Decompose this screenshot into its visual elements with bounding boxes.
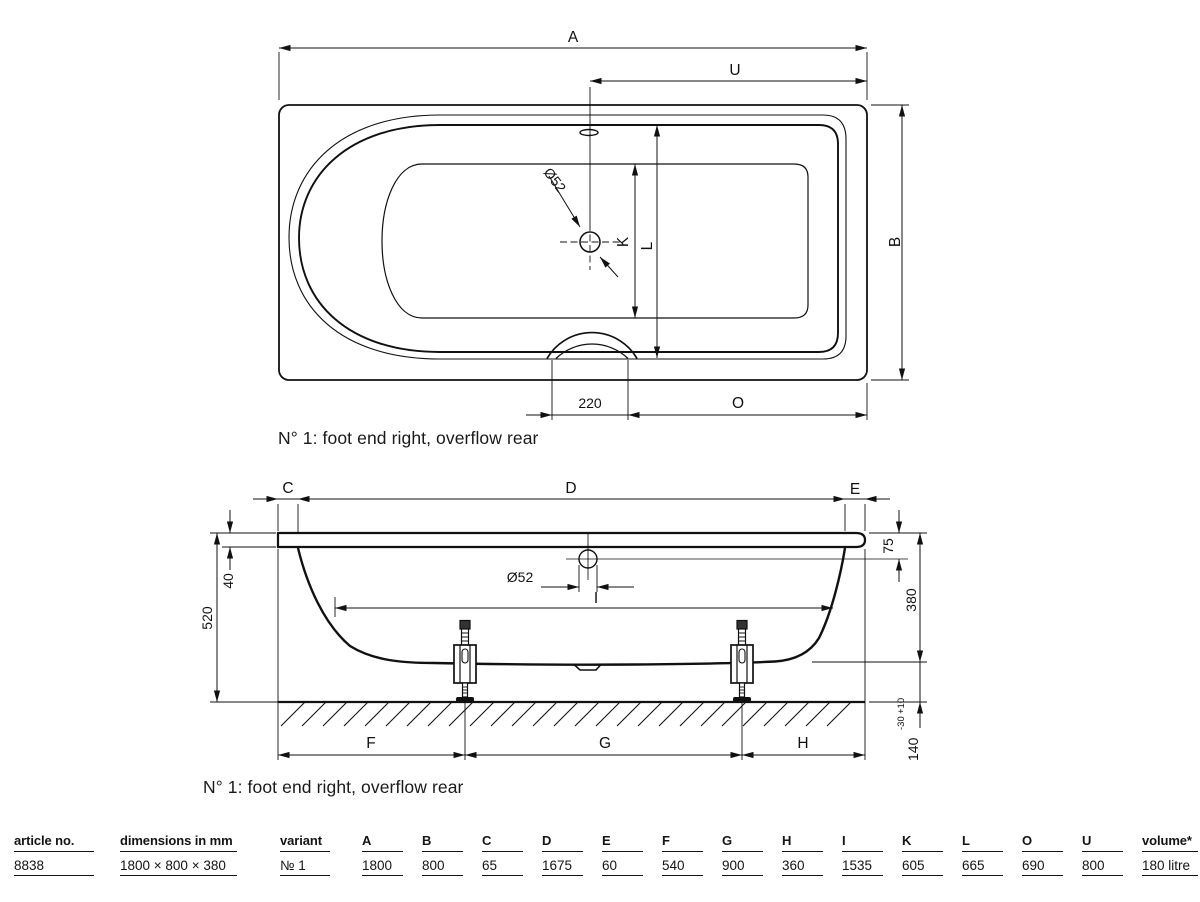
svg-text:O: O [732,395,744,412]
dim-220-O: 220 O [526,360,867,420]
dim-I: I [335,590,833,617]
top-view-caption: N° 1: foot end right, overflow rear [278,428,538,449]
svg-text:F: F [366,735,375,752]
svg-text:G: G [599,735,611,752]
svg-text:Ø52: Ø52 [507,569,534,585]
drain-leader-lower [600,257,618,277]
svg-text:75: 75 [880,538,896,554]
clearance-tol-plus: +10 [896,698,907,714]
spec-header-I: I [842,833,883,852]
svg-text:A: A [568,29,579,46]
side-view-caption: N° 1: foot end right, overflow rear [203,777,463,798]
dim-K: K [615,164,635,318]
spec-value-C: 65 [482,852,523,876]
svg-text:D: D [565,480,576,497]
svg-text:E: E [850,481,860,498]
spec-table-value-row: 88381800 × 800 × 380№ 118008006516756054… [14,852,1198,876]
svg-text:520: 520 [199,606,215,630]
spec-header-F: F [662,833,703,852]
dim-A: A [279,29,867,100]
spec-value-D: 1675 [542,852,583,876]
spec-header-U: U [1082,833,1123,852]
spec-value-O: 690 [1022,852,1063,876]
spec-value-H: 360 [782,852,823,876]
tub-shell-profile [298,548,845,665]
floor-clearance-label: 140 [905,737,921,761]
rim-edge-outer [289,115,846,359]
spec-header-A: A [362,833,403,852]
spec-value-A: 1800 [362,852,403,876]
dim-U: U [590,62,867,224]
spec-header-E: E [602,833,643,852]
svg-text:U: U [729,62,740,79]
dim-L: L [639,125,657,358]
svg-text:L: L [639,241,656,250]
spec-value-article_no: 8838 [14,852,94,876]
spec-value-B: 800 [422,852,463,876]
overflow-hole [580,130,598,136]
dim-40: 40 [220,510,276,589]
spec-value-L: 665 [962,852,1003,876]
spec-header-B: B [422,833,463,852]
spec-value-variant: № 1 [280,852,330,876]
svg-text:380: 380 [903,588,919,612]
dim-380: 380 [812,533,927,662]
spec-value-F: 540 [662,852,703,876]
clearance-tol-minus: -30 [896,716,907,730]
top-view: Ø52 A U B K L [279,29,909,420]
spec-header-article_no: article no. [14,833,94,852]
svg-text:B: B [887,237,904,247]
spec-header-G: G [722,833,763,852]
spec-header-L: L [962,833,1003,852]
svg-text:220: 220 [578,395,602,411]
spec-header-H: H [782,833,823,852]
spec-header-dimensions: dimensions in mm [120,833,237,852]
spec-table: article no.dimensions in mmvariantABCDEF… [14,833,1198,876]
spec-table-header-row: article no.dimensions in mmvariantABCDEF… [14,833,1198,852]
svg-text:40: 40 [220,573,236,589]
svg-text:K: K [615,236,632,247]
tub-foot-left [454,621,476,703]
dim-75: 75 [880,510,899,582]
svg-text:H: H [797,735,808,752]
spec-value-dimensions: 1800 × 800 × 380 [120,852,237,876]
svg-text:I: I [594,590,598,607]
spec-header-volume: volume* [1142,833,1198,852]
drain-diameter-label: Ø52 [541,165,570,196]
rim-plate [278,533,865,547]
dim-520: 520 [199,533,278,702]
dim-B: B [871,105,909,380]
dim-140: 140 -30 +10 [869,662,927,761]
dim-drain-52: Ø52 [507,565,634,592]
spec-header-K: K [902,833,943,852]
spec-header-variant: variant [280,833,330,852]
svg-text:C: C [282,480,293,497]
spec-value-U: 800 [1082,852,1123,876]
tub-foot-right [731,621,753,703]
spec-value-E: 60 [602,852,643,876]
spec-value-volume: 180 litre [1142,852,1198,876]
side-view: C D E Ø52 I [199,480,927,761]
floor-hatching [281,702,851,726]
basin-outline [382,164,808,318]
spec-sheet-page: Ø52 A U B K L [0,0,1200,902]
spec-header-O: O [1022,833,1063,852]
spec-value-K: 605 [902,852,943,876]
spec-header-C: C [482,833,523,852]
spec-value-G: 900 [722,852,763,876]
spec-header-D: D [542,833,583,852]
spec-value-I: 1535 [842,852,883,876]
technical-drawing: Ø52 A U B K L [0,0,1200,812]
